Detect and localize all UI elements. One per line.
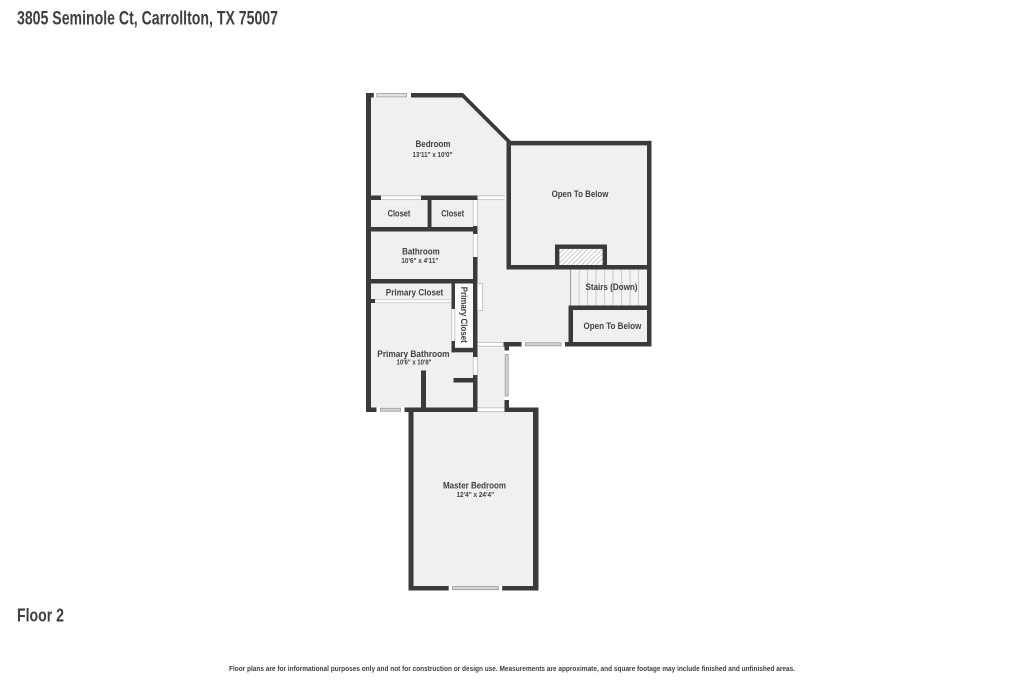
svg-text:Open To Below: Open To Below [552,189,609,199]
svg-text:13'11" x 10'0": 13'11" x 10'0" [413,152,453,159]
svg-text:Floor plans are for informatio: Floor plans are for informational purpos… [229,664,795,673]
svg-text:Bedroom: Bedroom [416,139,451,149]
svg-text:10'6" x 4'11": 10'6" x 4'11" [401,258,438,265]
svg-text:Primary Closet: Primary Closet [386,287,443,297]
svg-text:10'6" x 10'8": 10'6" x 10'8" [397,360,432,367]
svg-text:Floor 2: Floor 2 [17,605,64,626]
svg-text:3805 Seminole Ct, Carrollton,: 3805 Seminole Ct, Carrollton, TX 75007 [17,9,278,30]
svg-text:Bathroom: Bathroom [402,247,440,257]
svg-text:Primary Bathroom: Primary Bathroom [377,349,449,359]
svg-text:Master Bedroom: Master Bedroom [443,481,506,491]
svg-text:Closet: Closet [388,208,411,218]
svg-text:Primary Closet: Primary Closet [459,287,469,343]
svg-text:Closet: Closet [441,208,464,218]
svg-text:Stairs (Down): Stairs (Down) [586,282,638,292]
svg-text:Open To Below: Open To Below [583,321,642,331]
svg-text:12'4" x 24'4": 12'4" x 24'4" [457,492,495,499]
